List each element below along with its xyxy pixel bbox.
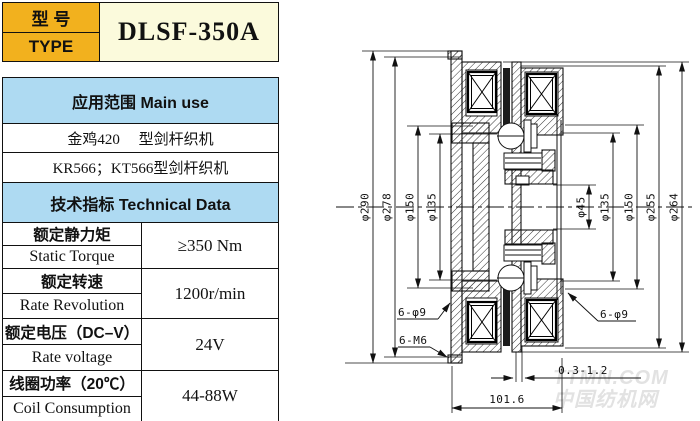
spec-label-en: Rate Revolution bbox=[3, 294, 141, 318]
dim-phi278: φ278 bbox=[381, 193, 394, 222]
model-label-cell: 型 号 TYPE bbox=[3, 3, 100, 61]
spec-value: ≥350 Nm bbox=[142, 223, 278, 268]
spec-label: 额定电压（DC–V） Rate voltage bbox=[3, 319, 142, 370]
label-thread-left: 6-M6 bbox=[399, 334, 428, 347]
spec-row-static-torque: 额定静力矩 Static Torque ≥350 Nm bbox=[3, 223, 278, 269]
main-use-row: 金鸡420 型剑杆织机 bbox=[3, 124, 278, 153]
label-holes-left: 6-φ9 bbox=[398, 306, 427, 319]
spec-row-rate-voltage: 额定电压（DC–V） Rate voltage 24V bbox=[3, 319, 278, 371]
label-width: 101.6 bbox=[489, 393, 525, 406]
spec-value: 44-88W bbox=[142, 371, 278, 421]
spec-row-coil-consumption: 线圈功率（20℃） Coil Consumption 44-88W bbox=[3, 371, 278, 421]
dim-phi150-right: φ150 bbox=[623, 193, 636, 222]
spec-sheet: TTMN.COM 中国纺机网 bbox=[0, 0, 700, 421]
dim-phi135-left: φ135 bbox=[426, 193, 439, 222]
spec-value: 24V bbox=[142, 319, 278, 370]
spec-label-cn: 额定电压（DC–V） bbox=[3, 319, 141, 345]
model-label-en: TYPE bbox=[3, 33, 99, 62]
spec-label: 额定转速 Rate Revolution bbox=[3, 269, 142, 318]
technical-data-header: 技术指标 Technical Data bbox=[3, 183, 278, 223]
model-value: DLSF-350A bbox=[100, 3, 278, 61]
spec-label-en: Static Torque bbox=[3, 246, 141, 268]
spec-label-en: Coil Consumption bbox=[3, 397, 141, 421]
model-row: 型 号 TYPE DLSF-350A bbox=[2, 2, 279, 62]
spec-label: 额定静力矩 Static Torque bbox=[3, 223, 142, 268]
dim-phi255: φ255 bbox=[645, 193, 658, 222]
spec-label-en: Rate voltage bbox=[3, 345, 141, 370]
dim-phi135-right: φ135 bbox=[599, 193, 612, 222]
spacer bbox=[2, 62, 279, 77]
spec-label-cn: 额定静力矩 bbox=[3, 223, 141, 246]
details-table: 应用范围 Main use 金鸡420 型剑杆织机 KR566；KT566型剑杆… bbox=[2, 77, 279, 421]
main-use-header: 应用范围 Main use bbox=[3, 78, 278, 124]
spec-label-cn: 额定转速 bbox=[3, 269, 141, 294]
label-gap: 0.3-1.2 bbox=[558, 364, 608, 377]
spec-label-cn: 线圈功率（20℃） bbox=[3, 371, 141, 397]
label-holes-right: 6-φ9 bbox=[600, 308, 629, 321]
main-use-row: KR566；KT566型剑杆织机 bbox=[3, 153, 278, 183]
spec-row-rate-revolution: 额定转速 Rate Revolution 1200r/min bbox=[3, 269, 278, 319]
model-label-cn: 型 号 bbox=[3, 3, 99, 33]
spec-label: 线圈功率（20℃） Coil Consumption bbox=[3, 371, 142, 421]
dim-phi45: φ45 bbox=[575, 196, 588, 217]
dim-phi150-left: φ150 bbox=[404, 193, 417, 222]
spec-table: 型 号 TYPE DLSF-350A 应用范围 Main use 金鸡420 型… bbox=[2, 2, 279, 421]
dim-phi290: φ290 bbox=[359, 193, 372, 222]
spec-value: 1200r/min bbox=[142, 269, 278, 318]
dim-phi264: φ264 bbox=[668, 193, 681, 222]
